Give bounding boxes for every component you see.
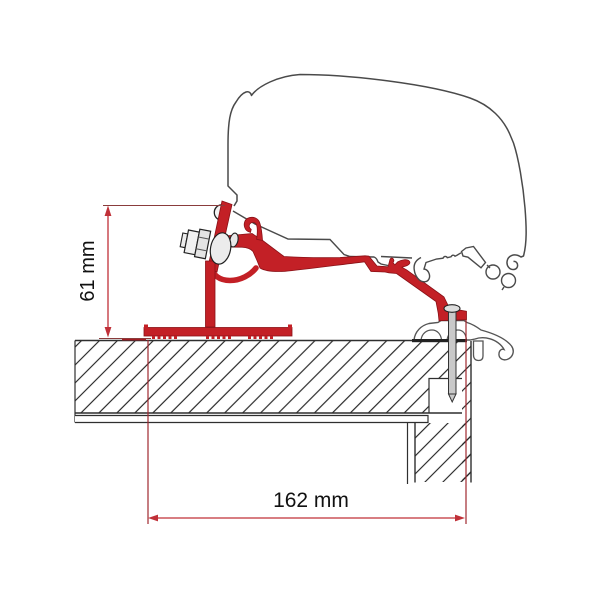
svg-text:162 mm: 162 mm [273,489,349,512]
svg-text:61 mm: 61 mm [77,240,99,301]
